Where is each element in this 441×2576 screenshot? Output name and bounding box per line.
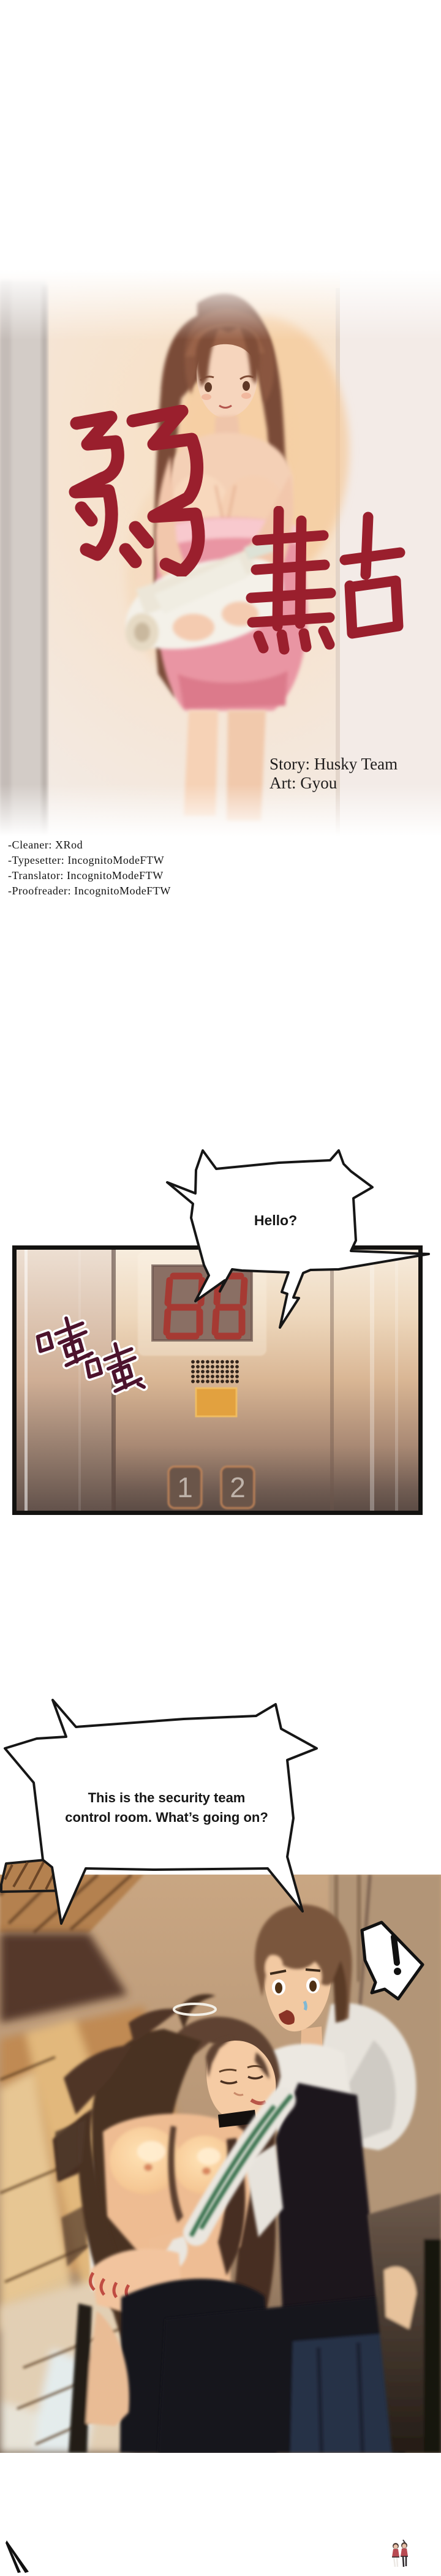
svg-text:1: 1	[177, 1471, 193, 1503]
svg-text:control room. What’s going on?: control room. What’s going on?	[65, 1810, 268, 1825]
svg-text:2: 2	[230, 1471, 246, 1503]
svg-text:This is the security team: This is the security team	[88, 1790, 246, 1805]
svg-text:Hello?: Hello?	[254, 1212, 297, 1228]
